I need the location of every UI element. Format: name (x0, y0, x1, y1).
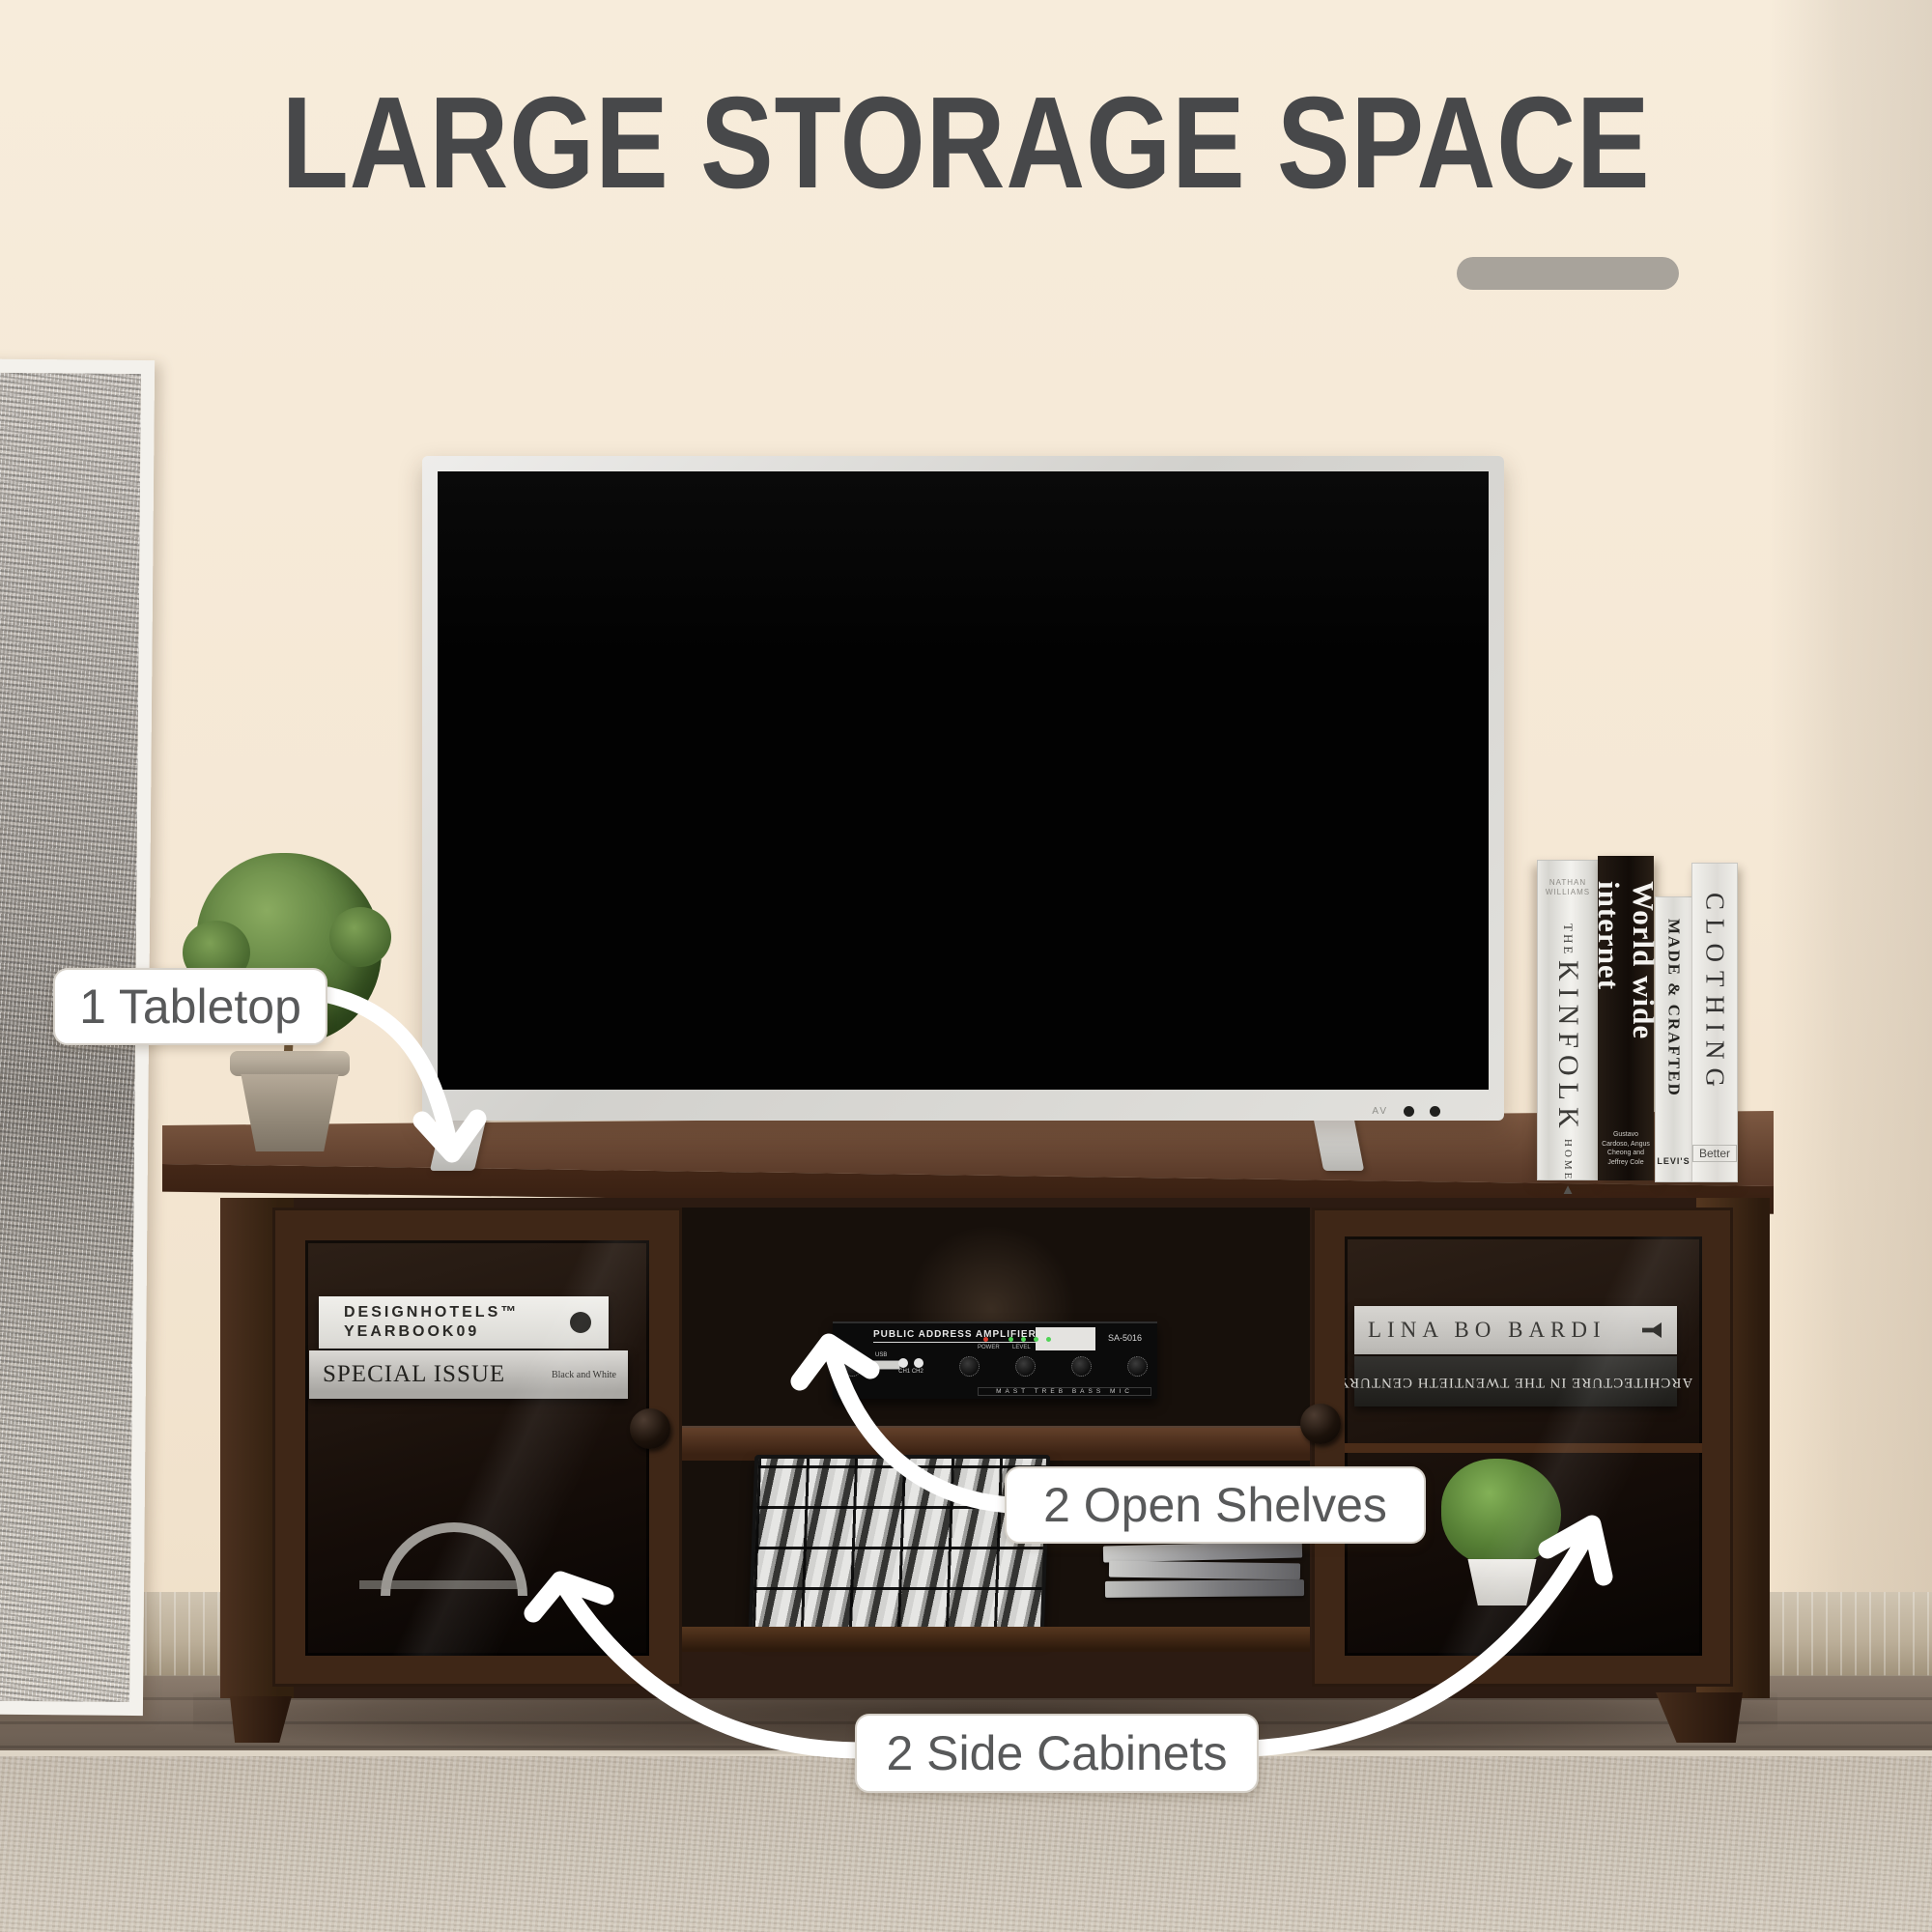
cd-case (1109, 1561, 1300, 1580)
channel-labels: CH1 CH2 (898, 1358, 923, 1375)
book-designhotels: DESIGNHOTELS™YEARBOOK09 (319, 1296, 609, 1349)
tv-screen (438, 471, 1489, 1090)
headphones (381, 1522, 527, 1596)
book-world-wide-internet: World wide internet Gustavo Cardoso, Ang… (1598, 856, 1654, 1180)
mic-knob (1127, 1356, 1148, 1377)
book-special-issue: SPECIAL ISSUE Black and White (309, 1350, 628, 1399)
eq-strip-labels: MAST TREB BASS MIC (978, 1387, 1151, 1396)
cabinet-shelf-edge (1345, 1443, 1702, 1453)
triangle-logo-icon: ▲ (1561, 1181, 1576, 1198)
product-scene: LARGE STORAGE SPACE PUBLIC ADDRESS AMPLI… (0, 0, 1932, 1932)
book-made-and-crafted: MADE & CRAFTED LEVI'S (1655, 896, 1692, 1182)
book-architecture: ARCHITECTURE IN THE TWENTIETH CENTURY (1354, 1356, 1677, 1406)
volume-knob (842, 1356, 863, 1377)
bottom-shelf-board (682, 1627, 1310, 1652)
title-underline-bar (1457, 257, 1679, 290)
book-logo-icon (570, 1312, 591, 1333)
tv-button-dot (1404, 1106, 1414, 1117)
right-door-knob (1300, 1404, 1341, 1444)
callout-open-shelves: 2 Open Shelves (1005, 1466, 1426, 1544)
power-label: POWER (978, 1345, 1000, 1350)
audio-amplifier: PUBLIC ADDRESS AMPLIFIER SA-5016 POWER L… (833, 1321, 1157, 1399)
treble-knob (959, 1356, 980, 1377)
small-plant-pot (1466, 1559, 1538, 1605)
plant-pot-rim (230, 1051, 350, 1076)
callout-tabletop: 1 Tabletop (53, 968, 327, 1045)
left-door-knob (630, 1408, 670, 1449)
bass-knob (1015, 1356, 1036, 1377)
page-title: LARGE STORAGE SPACE (155, 68, 1777, 217)
cd-case (1103, 1541, 1302, 1562)
book-clothing: CLOTHING Better (1691, 863, 1738, 1182)
level-label: LEVEL (1012, 1345, 1031, 1350)
tv-control-buttons: AV (1372, 1106, 1440, 1117)
amplifier-knob-row: CH1 CH2 (842, 1356, 1148, 1377)
cd-case (1105, 1579, 1304, 1598)
small-plant-foliage (1441, 1459, 1561, 1567)
book-logo-icon (1642, 1322, 1662, 1338)
headphones-base (359, 1580, 524, 1589)
power-led (983, 1337, 988, 1342)
right-door-glass: LINA BO BARDI ARCHITECTURE IN THE TWENTI… (1345, 1236, 1702, 1656)
cd-case-stack (1103, 1544, 1302, 1602)
callout-side-cabinets: 2 Side Cabinets (855, 1714, 1259, 1793)
tv-button-dot (1430, 1106, 1440, 1117)
level-leds (1009, 1337, 1051, 1342)
book-kinfolk-home: NATHAN WILLIAMS THE KINFOLK HOME ▲ (1537, 860, 1599, 1180)
television: AV (422, 456, 1504, 1121)
mixer-knob (1071, 1356, 1092, 1377)
left-door-glass: DESIGNHOTELS™YEARBOOK09 SPECIAL ISSUE Bl… (305, 1240, 649, 1656)
amplifier-model-text: SA-5016 (1108, 1333, 1142, 1343)
tv-av-label: AV (1372, 1106, 1388, 1117)
book-lina-bo-bardi: LINA BO BARDI (1354, 1306, 1677, 1354)
